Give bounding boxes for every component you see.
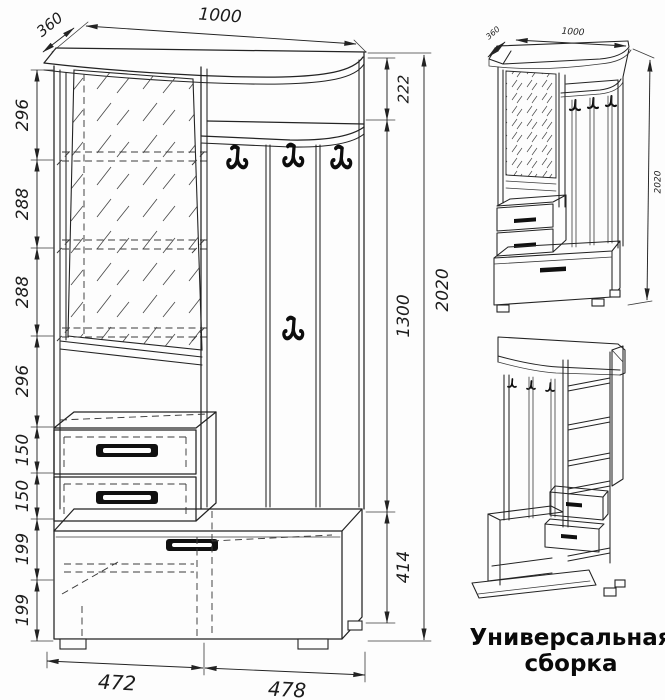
coat-hook-icon <box>228 147 247 168</box>
dim-label: 150 <box>13 434 33 466</box>
foot <box>348 621 362 630</box>
dim-label: 296 <box>13 365 33 398</box>
foot <box>298 639 328 649</box>
dim-depth-label: 360 <box>33 9 67 41</box>
door-handle <box>540 267 566 273</box>
dim-label: 414 <box>394 551 414 583</box>
iso-dim-depth-label: 360 <box>484 25 501 42</box>
iso-bottom-cabinet <box>494 241 620 312</box>
caption-line-1: Универсальная <box>469 625 665 651</box>
coat-hook-icon <box>570 100 580 110</box>
mirror-panel <box>68 70 202 350</box>
iso-mirror-panel <box>506 71 556 178</box>
dim-label: 222 <box>395 75 413 104</box>
drawer-handle <box>561 534 577 539</box>
technical-drawing-canvas: 1000 360 296 288 288 296 150 150 <box>0 0 665 700</box>
dim-line-width <box>86 26 356 44</box>
iso2-bench <box>488 487 610 585</box>
bottom-cabinet <box>54 509 362 649</box>
dim-label: 478 <box>267 677 306 700</box>
dim-label: 1300 <box>394 294 414 337</box>
foot <box>60 639 86 649</box>
iso-exploded-view <box>472 337 625 598</box>
dim-label: 288 <box>13 188 33 221</box>
iso-dim-height-line <box>647 60 650 300</box>
drawer-handle <box>514 217 536 223</box>
foot <box>615 580 625 587</box>
iso2-open-door <box>472 570 625 598</box>
hook-panel <box>228 145 351 507</box>
dim-label: 296 <box>13 99 33 132</box>
left-dimension-chain: 296 288 288 296 150 150 199 199 <box>13 70 53 641</box>
foot <box>604 588 616 596</box>
iso-dim-width-label: 1000 <box>561 27 585 39</box>
bottom-dimension-chain: 472 478 <box>47 643 365 700</box>
coat-hook-icon <box>527 381 535 389</box>
iso2-hook-panel <box>504 375 555 520</box>
coat-hook-icon <box>546 383 554 391</box>
dim-label: 288 <box>13 276 33 309</box>
coat-hook-icon <box>284 318 303 339</box>
dim-label: 199 <box>13 533 33 565</box>
drawing-page: 1000 360 296 288 288 296 150 150 <box>0 0 665 700</box>
iso2-open-drawers <box>545 486 608 552</box>
main-front-view: 1000 360 296 288 288 296 150 150 <box>13 5 453 700</box>
coat-hook-icon <box>606 96 616 106</box>
caption-line-2: сборка <box>524 651 617 677</box>
mirror-section <box>54 66 207 531</box>
iso-mirror-section <box>498 67 565 207</box>
right-side-panel <box>359 53 364 509</box>
iso-hook-section <box>561 49 629 248</box>
dim-height-label: 2020 <box>433 268 453 311</box>
foot <box>610 290 620 297</box>
coat-hook-icon <box>588 98 598 108</box>
coat-hook-icon <box>332 147 351 168</box>
right-dimension-chain: 222 1300 414 <box>366 58 414 623</box>
foot <box>497 305 509 312</box>
dim-label: 150 <box>13 480 33 512</box>
foot <box>592 299 604 306</box>
drawer-unit <box>54 412 216 521</box>
iso-dim-depth-line <box>488 42 505 57</box>
dim-label: 472 <box>97 670 136 696</box>
coat-hook-icon <box>284 145 303 166</box>
center-divider <box>201 67 207 509</box>
iso2-canopy <box>498 337 625 391</box>
iso-dim-height-label: 2020 <box>654 170 664 193</box>
dim-label: 199 <box>13 594 33 626</box>
dim-width-label: 1000 <box>198 5 243 28</box>
hat-shelf <box>201 121 364 147</box>
iso2-side-panel <box>612 346 623 486</box>
iso-assembled-view: 360 1000 2020 <box>484 25 663 312</box>
